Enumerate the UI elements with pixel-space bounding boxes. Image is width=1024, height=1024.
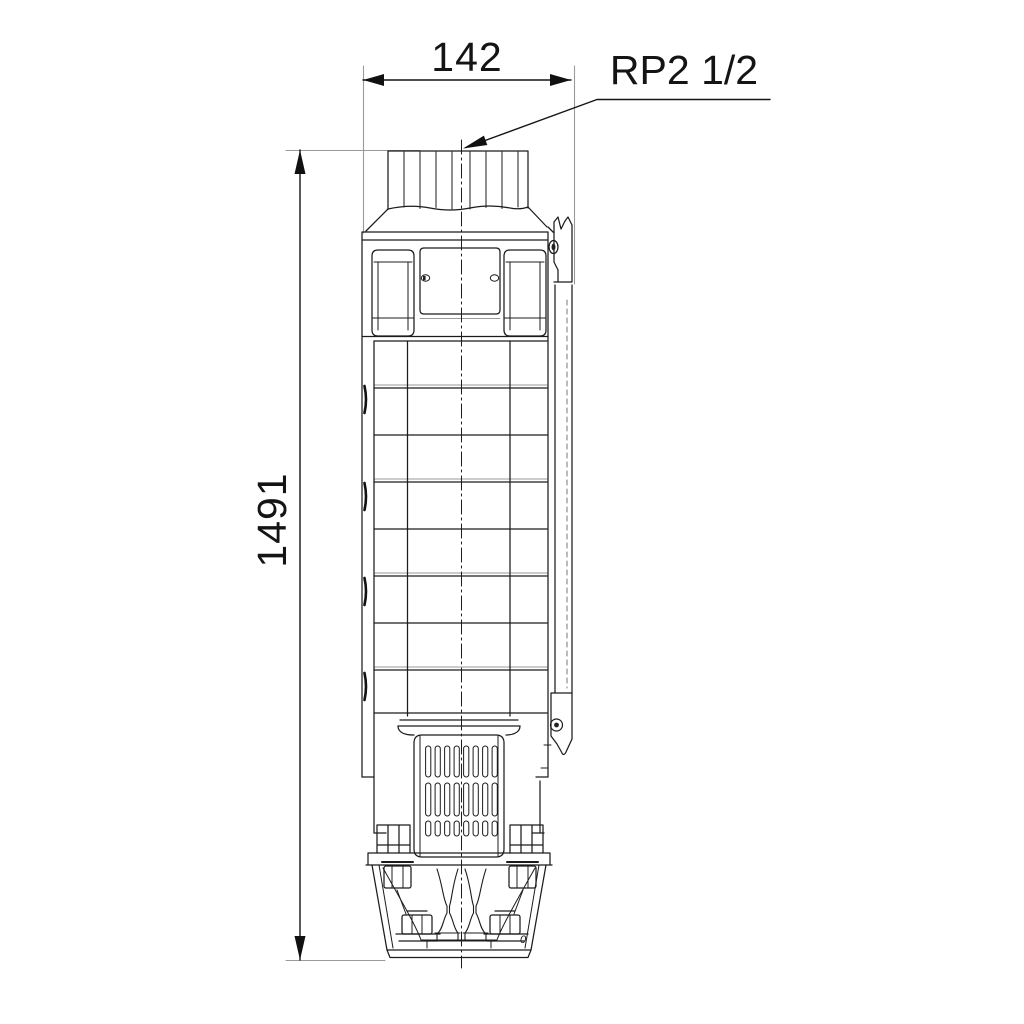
- cable-clamp-tabs: [365, 386, 367, 700]
- stray-mark: 0: [520, 934, 526, 946]
- height-dimension-label: 1491: [252, 420, 294, 620]
- dimension-arrowheads: [295, 74, 572, 960]
- width-dimension-label: 142: [363, 37, 571, 78]
- technical-drawing-page: 142 RP2 1/2 1491 0: [0, 0, 1024, 1024]
- dimension-lines: [300, 80, 770, 960]
- connection-thread-label: RP2 1/2: [594, 50, 774, 91]
- pump-outline-drawing: [0, 0, 1024, 1024]
- extension-lines: [286, 66, 575, 961]
- pump-body-lines: [362, 151, 572, 958]
